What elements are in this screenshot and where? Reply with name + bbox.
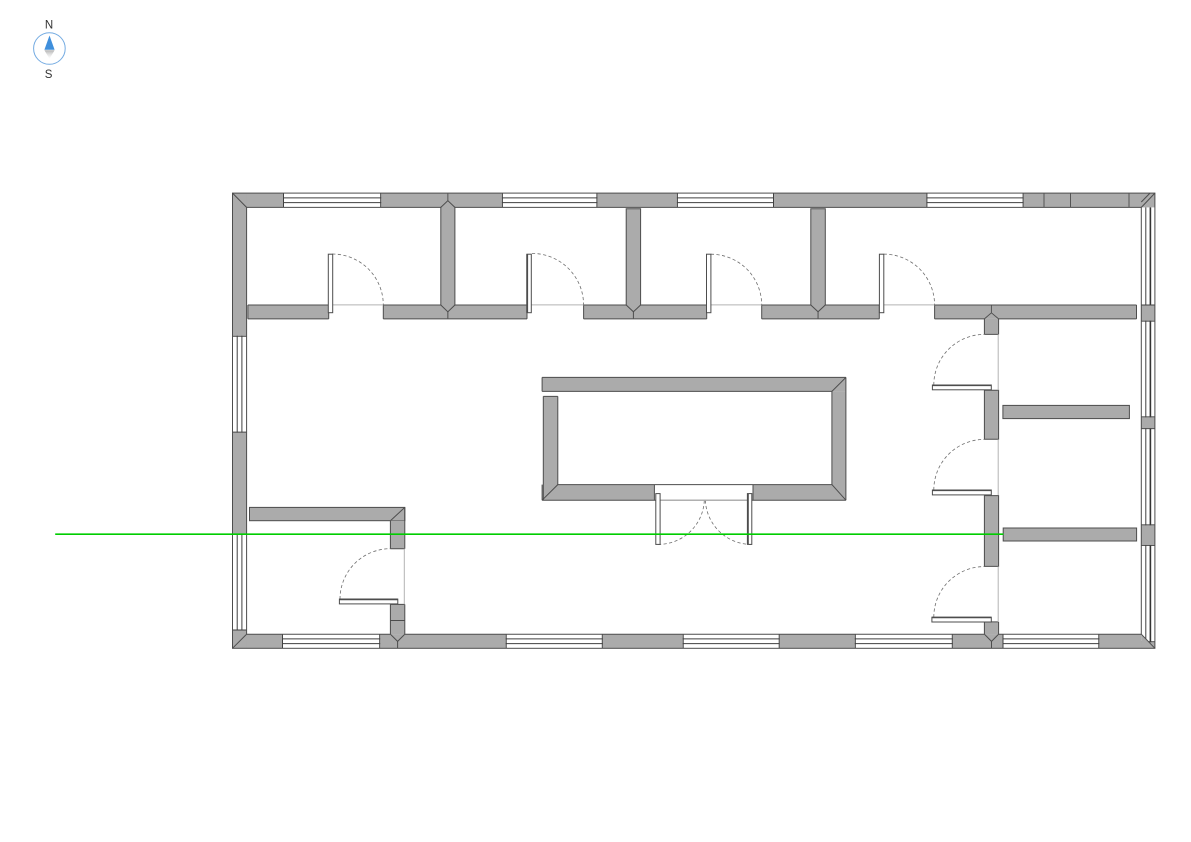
svg-text:N: N <box>45 20 53 32</box>
svg-text:S: S <box>45 69 53 81</box>
